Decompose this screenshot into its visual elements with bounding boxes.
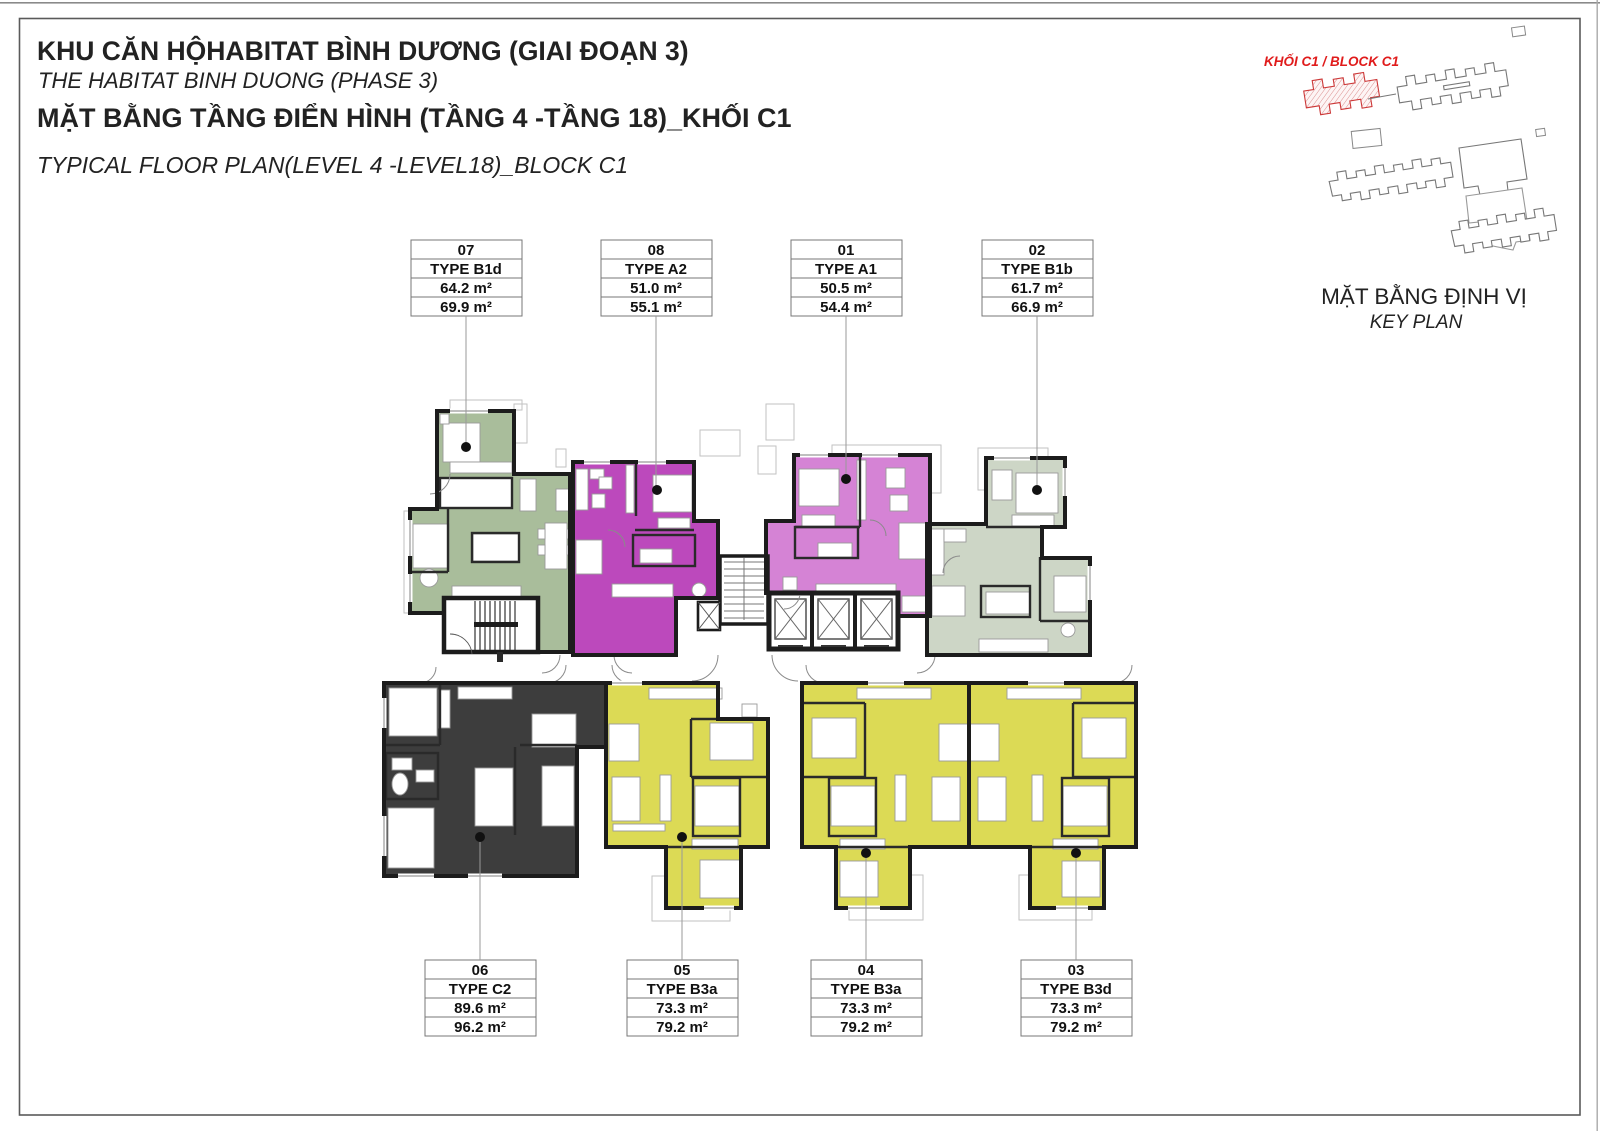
- svg-text:TYPE B1d: TYPE B1d: [430, 261, 502, 278]
- svg-text:TYPE A2: TYPE A2: [625, 261, 687, 278]
- svg-text:79.2 m²: 79.2 m²: [1050, 1019, 1102, 1036]
- svg-text:05: 05: [674, 962, 691, 979]
- svg-text:TYPE B1b: TYPE B1b: [1001, 261, 1073, 278]
- svg-text:TYPE B3a: TYPE B3a: [831, 981, 903, 998]
- svg-text:TYPE B3d: TYPE B3d: [1040, 981, 1112, 998]
- svg-text:96.2 m²: 96.2 m²: [454, 1019, 506, 1036]
- svg-text:MẶT BẰNG TẦNG ĐIỂN HÌNH (TẦNG: MẶT BẰNG TẦNG ĐIỂN HÌNH (TẦNG 4 -TẦNG 18…: [37, 101, 792, 133]
- svg-text:08: 08: [648, 242, 665, 259]
- svg-text:69.9 m²: 69.9 m²: [440, 299, 492, 316]
- svg-text:07: 07: [458, 242, 475, 259]
- svg-text:61.7 m²: 61.7 m²: [1011, 280, 1063, 297]
- svg-text:55.1 m²: 55.1 m²: [630, 299, 682, 316]
- svg-text:03: 03: [1068, 962, 1085, 979]
- svg-text:TYPE B3a: TYPE B3a: [647, 981, 719, 998]
- svg-text:89.6 m²: 89.6 m²: [454, 1000, 506, 1017]
- svg-text:TYPE A1: TYPE A1: [815, 261, 877, 278]
- svg-text:50.5 m²: 50.5 m²: [820, 280, 872, 297]
- svg-text:TYPICAL FLOOR PLAN(LEVEL 4 -LE: TYPICAL FLOOR PLAN(LEVEL 4 -LEVEL18)_BLO…: [37, 152, 628, 178]
- svg-text:01: 01: [838, 242, 855, 259]
- svg-text:73.3 m²: 73.3 m²: [656, 1000, 708, 1017]
- svg-text:KEY PLAN: KEY PLAN: [1370, 312, 1463, 333]
- svg-text:51.0 m²: 51.0 m²: [630, 280, 682, 297]
- svg-text:04: 04: [858, 962, 875, 979]
- svg-text:73.3 m²: 73.3 m²: [840, 1000, 892, 1017]
- svg-text:54.4 m²: 54.4 m²: [820, 299, 872, 316]
- svg-text:06: 06: [472, 962, 489, 979]
- svg-text:79.2 m²: 79.2 m²: [656, 1019, 708, 1036]
- svg-text:KHỐI C1 / BLOCK C1: KHỐI C1 / BLOCK C1: [1264, 54, 1399, 69]
- svg-text:66.9 m²: 66.9 m²: [1011, 299, 1063, 316]
- svg-text:64.2 m²: 64.2 m²: [440, 280, 492, 297]
- svg-text:MẶT BẰNG ĐỊNH VỊ: MẶT BẰNG ĐỊNH VỊ: [1321, 284, 1527, 309]
- svg-text:KHU CĂN HỘHABITAT BÌNH DƯƠNG (: KHU CĂN HỘHABITAT BÌNH DƯƠNG (GIAI ĐOẠN …: [37, 36, 689, 66]
- svg-text:02: 02: [1029, 242, 1046, 259]
- svg-text:73.3 m²: 73.3 m²: [1050, 1000, 1102, 1017]
- svg-text:79.2 m²: 79.2 m²: [840, 1019, 892, 1036]
- svg-text:THE HABITAT BINH DUONG (PHASE: THE HABITAT BINH DUONG (PHASE 3): [38, 68, 438, 93]
- svg-text:TYPE C2: TYPE C2: [449, 981, 512, 998]
